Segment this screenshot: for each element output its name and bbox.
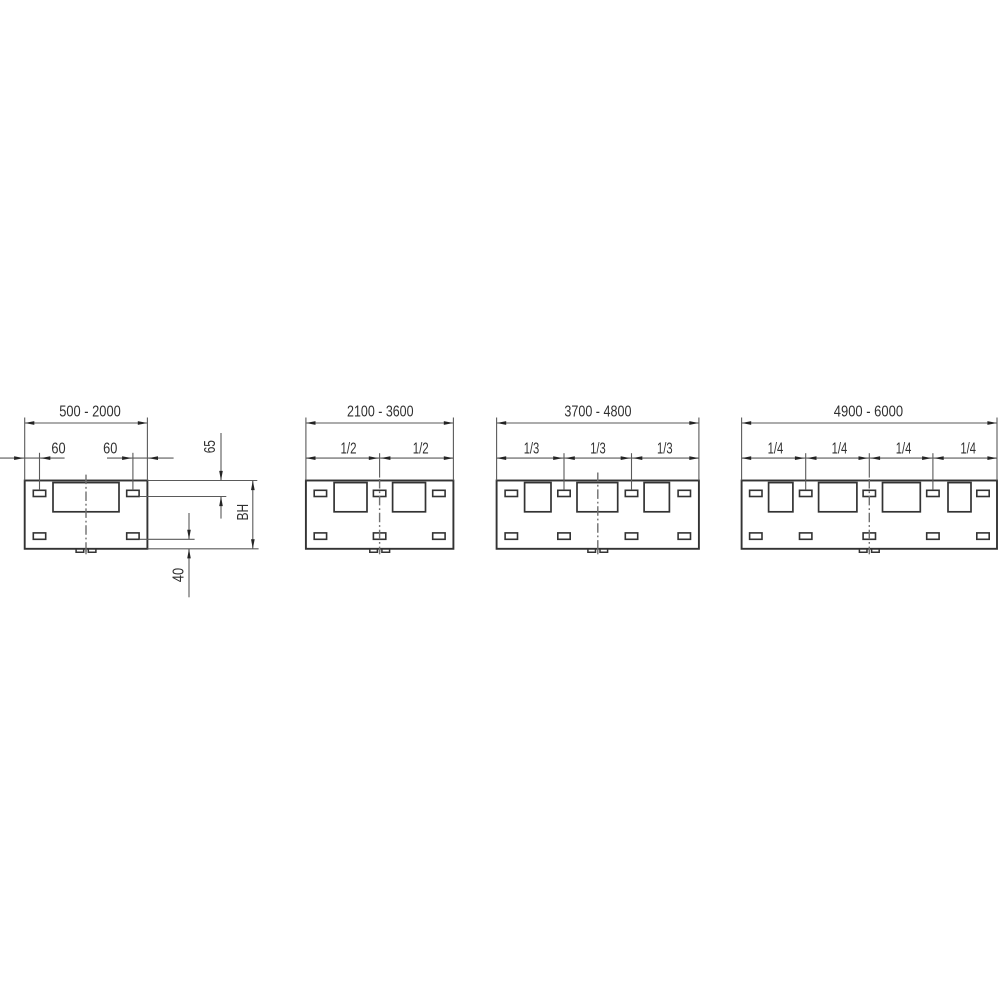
svg-text:1/4: 1/4 xyxy=(896,441,912,458)
svg-text:1/2: 1/2 xyxy=(413,441,429,458)
svg-text:1/3: 1/3 xyxy=(590,441,606,458)
svg-text:1/3: 1/3 xyxy=(524,441,540,458)
svg-text:1/2: 1/2 xyxy=(341,441,357,458)
svg-text:1/4: 1/4 xyxy=(768,441,784,458)
svg-text:3700 - 4800: 3700 - 4800 xyxy=(564,403,631,420)
svg-text:60: 60 xyxy=(51,441,66,458)
svg-text:500 - 2000: 500 - 2000 xyxy=(59,403,121,420)
svg-text:1/3: 1/3 xyxy=(657,441,673,458)
svg-text:4900 - 6000: 4900 - 6000 xyxy=(834,403,904,420)
svg-text:60: 60 xyxy=(103,441,118,458)
svg-text:2100 - 3600: 2100 - 3600 xyxy=(347,403,414,420)
svg-text:BH: BH xyxy=(235,504,252,521)
svg-text:40: 40 xyxy=(171,568,188,583)
svg-text:1/4: 1/4 xyxy=(960,441,976,458)
svg-text:65: 65 xyxy=(202,440,219,453)
svg-text:1/4: 1/4 xyxy=(832,441,848,458)
